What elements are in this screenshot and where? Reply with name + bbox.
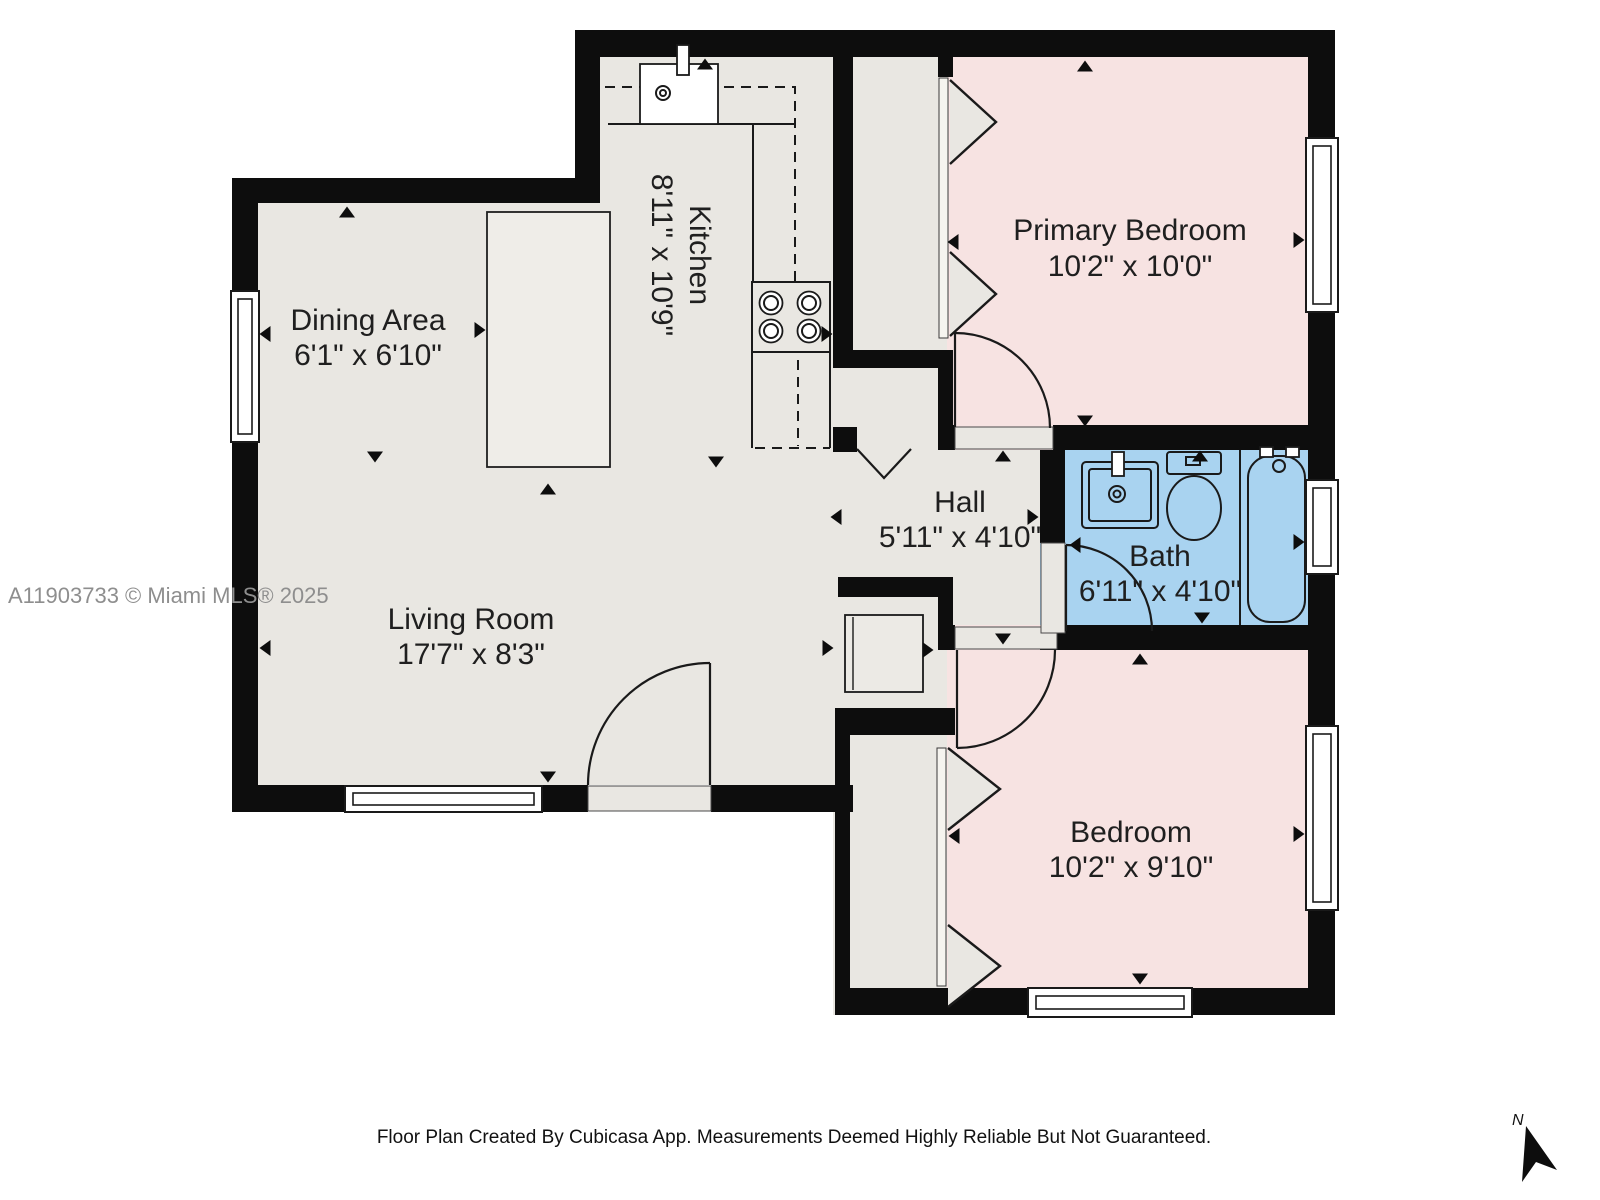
- room-label-hall: Hall: [934, 486, 986, 519]
- room-dims-kitchen: 8'11" x 10'9": [645, 174, 678, 336]
- room-dims-bath: 6'11" x 4'10": [1079, 575, 1241, 608]
- floor-plan-canvas: Dining Area 6'1" x 6'10" Kitchen 8'11" x…: [0, 0, 1600, 1200]
- compass-n-label: N: [1512, 1112, 1524, 1129]
- room-dims-living: 17'7" x 8'3": [397, 638, 545, 671]
- wall-closet-bottom: [833, 350, 953, 368]
- wall-left: [232, 178, 258, 790]
- room-label-dining: Dining Area: [290, 304, 445, 337]
- wall-living-bottom-2: [542, 785, 588, 812]
- footer-disclaimer: Floor Plan Created By Cubicasa App. Meas…: [377, 1127, 1211, 1148]
- compass: N: [1512, 1112, 1557, 1182]
- wall-nook-bottom: [835, 708, 955, 735]
- window-bedroom-bottom: [1028, 988, 1192, 1017]
- bedroom-floor: [947, 625, 1308, 988]
- wall-bath-left-upper: [1040, 450, 1065, 543]
- bath-door-threshold: [1041, 543, 1065, 633]
- room-dims-dining: 6'1" x 6'10": [294, 339, 442, 372]
- dining-counter: [487, 212, 610, 467]
- window-primary-right: [1306, 138, 1338, 312]
- bedroom-closet-door: [937, 748, 946, 986]
- toilet: [1167, 452, 1221, 540]
- wall-hall-top-left: [938, 425, 955, 450]
- wall-hall-bottom-left: [838, 577, 953, 597]
- room-dims-bedroom: 10'2" x 9'10": [1049, 851, 1214, 884]
- wall-nook-right: [938, 577, 953, 650]
- bathtub: [1248, 447, 1305, 622]
- window-bath-right: [1306, 480, 1338, 574]
- window-dining-left: [231, 291, 259, 442]
- wall-kitchen-left: [575, 30, 600, 203]
- primary-closet-door: [939, 78, 948, 338]
- primary-door-threshold: [955, 427, 1053, 449]
- window-living-bottom: [345, 786, 542, 812]
- room-label-primary: Primary Bedroom: [1013, 214, 1246, 247]
- room-label-kitchen: Kitchen: [683, 205, 716, 305]
- hall-utility-closet: [845, 615, 923, 692]
- window-bedroom-right: [1306, 726, 1338, 910]
- room-label-bath: Bath: [1129, 540, 1191, 573]
- wall-living-bottom-3: [711, 785, 853, 812]
- wall-bedroom-top-right: [1057, 625, 1308, 650]
- wall-dining-top: [232, 178, 600, 203]
- wall-kitchen-hall-pillar: [833, 427, 857, 452]
- mls-watermark: A11903733 © Miami MLS® 2025: [8, 583, 329, 608]
- north-arrow-icon: [1522, 1126, 1557, 1182]
- wall-bedroom-bottom-1: [835, 988, 1028, 1015]
- wall-closet-stub-top: [938, 57, 953, 77]
- room-label-living: Living Room: [388, 603, 555, 636]
- bath-sink: [1082, 452, 1158, 528]
- wall-bedroom-block-left: [835, 708, 850, 1015]
- room-label-bedroom: Bedroom: [1070, 816, 1192, 849]
- front-door-threshold: [588, 786, 711, 811]
- wall-kitchen-right: [833, 57, 853, 362]
- wall-living-bottom-1: [232, 785, 345, 812]
- room-dims-hall: 5'11" x 4'10": [879, 521, 1041, 554]
- floor-plan-page: Dining Area 6'1" x 6'10" Kitchen 8'11" x…: [0, 0, 1600, 1200]
- wall-bedroom-bottom-2: [1192, 988, 1335, 1015]
- room-dims-primary: 10'2" x 10'0": [1048, 250, 1213, 283]
